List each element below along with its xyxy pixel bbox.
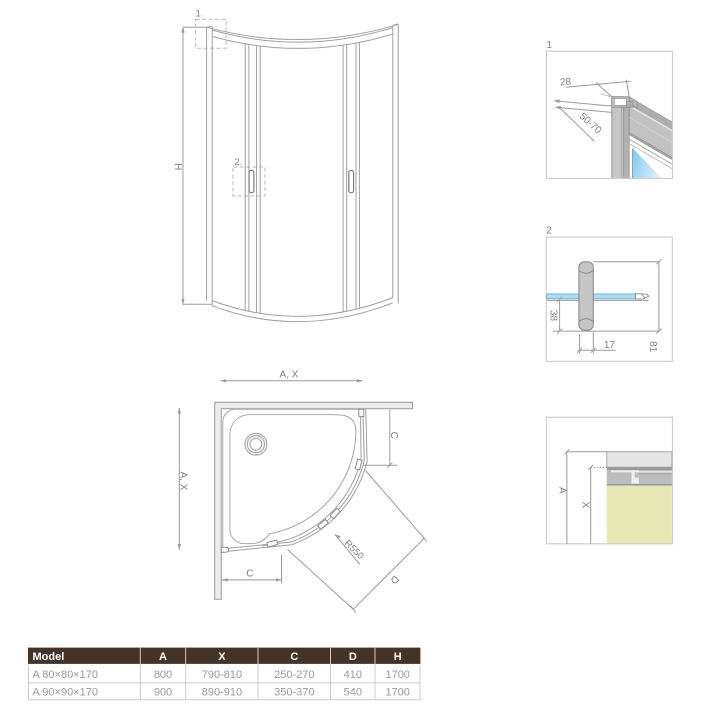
svg-text:410: 410: [344, 669, 362, 681]
svg-text:1: 1: [547, 40, 553, 51]
svg-text:890-910: 890-910: [202, 686, 242, 698]
svg-text:28: 28: [560, 77, 572, 89]
svg-text:X: X: [218, 651, 226, 663]
svg-text:50-70: 50-70: [577, 111, 604, 137]
svg-text:1700: 1700: [385, 669, 409, 681]
svg-text:350-370: 350-370: [274, 686, 314, 698]
svg-text:790-810: 790-810: [202, 669, 242, 681]
svg-text:C: C: [246, 569, 253, 580]
svg-text:38: 38: [547, 310, 558, 322]
svg-text:X: X: [580, 502, 591, 509]
svg-text:A: A: [159, 651, 167, 663]
svg-text:R550: R550: [342, 538, 366, 562]
svg-text:2.: 2.: [235, 157, 243, 168]
svg-text:800: 800: [154, 669, 172, 681]
svg-text:D: D: [388, 573, 401, 586]
svg-text:A, X: A, X: [280, 370, 299, 381]
svg-text:Model: Model: [33, 651, 65, 663]
svg-text:900: 900: [154, 686, 172, 698]
svg-text:1700: 1700: [385, 686, 409, 698]
svg-text:540: 540: [344, 686, 362, 698]
svg-text:17: 17: [604, 340, 616, 351]
svg-text:A 80×80×170: A 80×80×170: [33, 669, 98, 681]
svg-text:A, X: A, X: [178, 472, 189, 491]
svg-text:H: H: [172, 163, 183, 170]
svg-text:250-270: 250-270: [274, 669, 314, 681]
svg-text:H: H: [394, 651, 402, 663]
svg-text:C: C: [388, 432, 399, 439]
svg-text:1.: 1.: [196, 9, 204, 20]
svg-text:2: 2: [546, 226, 552, 237]
svg-text:C: C: [290, 651, 298, 663]
svg-text:A: A: [557, 487, 568, 494]
svg-text:A 90×90×170: A 90×90×170: [33, 686, 98, 698]
svg-text:D: D: [349, 651, 357, 663]
svg-text:81: 81: [647, 341, 658, 353]
